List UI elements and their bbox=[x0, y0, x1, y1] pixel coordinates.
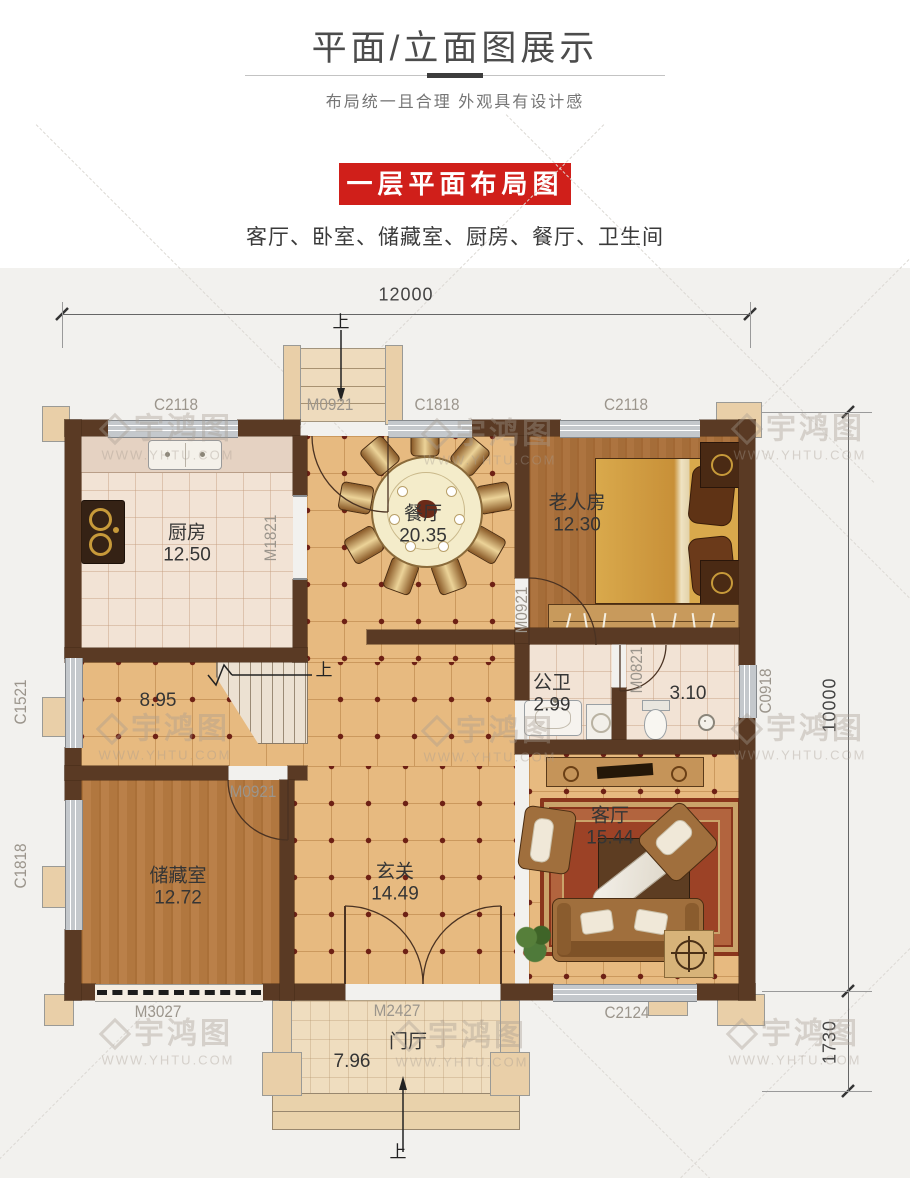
window-c2118-kitchen bbox=[108, 420, 238, 438]
porch-column-left bbox=[262, 1052, 302, 1096]
label-c1818-storage: C1818 bbox=[11, 843, 31, 888]
wall bbox=[739, 420, 755, 665]
tv bbox=[597, 763, 654, 779]
up-label-top: 上 bbox=[333, 308, 350, 333]
window-c1521-hall bbox=[65, 658, 83, 748]
room-label-hall-area: 8.95 bbox=[140, 690, 177, 712]
window-c2118-elder bbox=[560, 420, 700, 438]
room-label-storage: 储藏室12.72 bbox=[149, 861, 206, 910]
wall bbox=[515, 436, 529, 578]
label-m3027-storage: M3027 bbox=[135, 1002, 182, 1022]
window-c1818-dining bbox=[388, 420, 472, 438]
dim-extension bbox=[762, 1091, 872, 1092]
label-m0921-entry-top: M0921 bbox=[307, 395, 354, 415]
porch-step bbox=[272, 1093, 520, 1112]
wall bbox=[515, 740, 739, 754]
top-porch-column-right bbox=[385, 345, 403, 425]
room-label-porch-name: 门厅 bbox=[389, 1027, 427, 1054]
room-label-kitchen: 厨房12.50 bbox=[163, 518, 211, 567]
room-label-bath: 公卫2.99 bbox=[533, 668, 571, 717]
sofa-pillow bbox=[580, 909, 615, 935]
wall bbox=[65, 930, 81, 1000]
floor-plan-page: 平面/立面图展示 布局统一且合理 外观具有设计感 一层平面布局图 客厅、卧室、储… bbox=[0, 0, 910, 1178]
label-m0821-bath: M0821 bbox=[627, 647, 647, 694]
dim-line-right bbox=[848, 412, 849, 1091]
divider-line-right bbox=[483, 75, 665, 76]
wall bbox=[612, 688, 626, 740]
label-m2427-entry: M2427 bbox=[374, 1001, 421, 1021]
page-subtitle: 布局统一且合理 外观具有设计感 bbox=[0, 88, 910, 112]
wall bbox=[65, 648, 307, 662]
dim-extension bbox=[62, 302, 63, 348]
plant bbox=[514, 922, 556, 966]
wall bbox=[65, 766, 228, 780]
label-c2118-elder: C2118 bbox=[604, 395, 648, 415]
label-c1818-dining: C1818 bbox=[414, 395, 459, 415]
window-c1818-storage bbox=[65, 800, 83, 930]
label-m1821-kitchen: M1821 bbox=[261, 515, 281, 562]
dim-line-top bbox=[62, 314, 750, 315]
top-porch-column-left bbox=[283, 345, 301, 425]
wall bbox=[288, 766, 307, 780]
armchair bbox=[517, 805, 577, 876]
wall bbox=[65, 420, 81, 658]
tv-console bbox=[546, 757, 704, 787]
porch-step bbox=[272, 1111, 520, 1130]
wall bbox=[501, 984, 553, 1000]
window-c2124-living bbox=[553, 984, 697, 1002]
up-label-stairs: 上 bbox=[316, 656, 333, 681]
dim-width-total: 12000 bbox=[378, 285, 433, 306]
room-label-foyer: 玄关14.49 bbox=[371, 857, 419, 906]
dim-extension bbox=[762, 991, 872, 992]
room-label-porch-area: 7.96 bbox=[334, 1051, 371, 1073]
window-c0918-toilet bbox=[739, 665, 757, 718]
room-label-toilet-area: 3.10 bbox=[670, 683, 707, 705]
wall bbox=[367, 630, 515, 644]
side-table-fan bbox=[664, 930, 714, 978]
dim-extension bbox=[762, 412, 872, 413]
label-m0921-elder: M0921 bbox=[512, 587, 532, 634]
section-badge: 一层平面布局图 bbox=[339, 163, 571, 205]
wall bbox=[263, 984, 345, 1000]
dim-height-main: 10000 bbox=[820, 677, 841, 732]
opening-m1821 bbox=[293, 578, 307, 580]
wall bbox=[515, 644, 529, 700]
wall bbox=[739, 718, 755, 1000]
label-c1521-hall: C1521 bbox=[11, 679, 31, 724]
wall bbox=[515, 628, 739, 644]
washer bbox=[586, 704, 614, 740]
label-c2118-kitchen: C2118 bbox=[154, 395, 198, 415]
label-m0921-storage: M0921 bbox=[230, 782, 277, 802]
page-title: 平面/立面图展示 bbox=[0, 20, 910, 71]
top-porch-step bbox=[299, 386, 385, 387]
wall bbox=[472, 420, 560, 436]
nightstand bbox=[700, 442, 742, 488]
porch-column-right bbox=[490, 1052, 530, 1096]
wall bbox=[293, 436, 307, 495]
wall bbox=[280, 780, 294, 1000]
room-label-elder: 老人房12.30 bbox=[548, 488, 605, 537]
dim-porch-depth: 1730 bbox=[820, 1020, 841, 1064]
opening-m3027 bbox=[95, 984, 263, 1002]
label-c0918-toilet: C0918 bbox=[756, 668, 776, 713]
opening-m1821 bbox=[293, 495, 307, 497]
title-divider bbox=[245, 72, 665, 78]
toilet bbox=[642, 700, 668, 740]
top-porch-step bbox=[299, 368, 385, 369]
divider-center-block bbox=[427, 73, 483, 78]
label-c2124-living: C2124 bbox=[604, 1003, 649, 1023]
wall bbox=[238, 420, 300, 436]
dining-chair bbox=[337, 481, 375, 515]
divider-line-left bbox=[245, 75, 427, 76]
room-label-dining: 餐厅20.35 bbox=[399, 499, 447, 548]
kitchen-stove bbox=[81, 500, 125, 564]
room-label-living: 客厅15.44 bbox=[586, 801, 634, 850]
kitchen-sink bbox=[148, 440, 222, 470]
up-label-porch: 上 bbox=[390, 1138, 407, 1163]
nightstand bbox=[700, 560, 742, 606]
floor-drain bbox=[698, 714, 715, 731]
dim-extension bbox=[750, 302, 751, 348]
